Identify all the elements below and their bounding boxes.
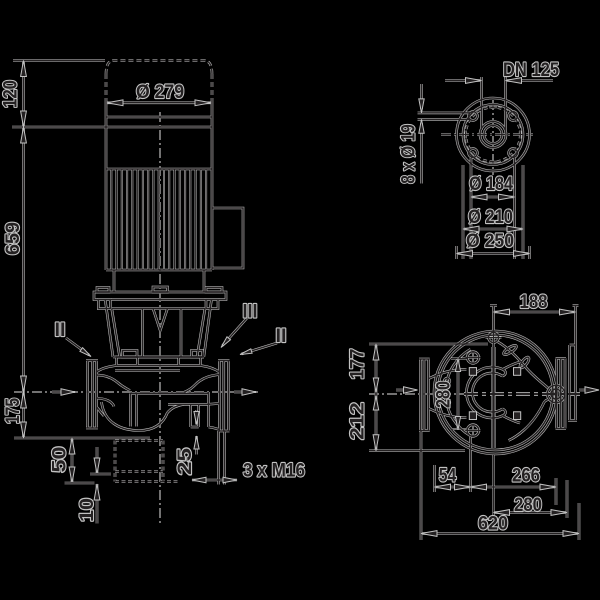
svg-text:Ø 184: Ø 184 — [469, 174, 513, 195]
svg-text:DN 125: DN 125 — [503, 60, 559, 81]
svg-text:8 x Ø 19: 8 x Ø 19 — [399, 124, 420, 184]
svg-text:Ø 279: Ø 279 — [136, 82, 184, 103]
svg-text:120: 120 — [1, 80, 22, 108]
svg-text:II: II — [55, 320, 66, 341]
svg-text:25: 25 — [175, 447, 196, 475]
svg-text:50: 50 — [50, 447, 71, 473]
svg-text:659: 659 — [3, 222, 24, 255]
svg-text:280: 280 — [514, 495, 542, 516]
svg-text:54: 54 — [439, 466, 457, 487]
svg-text:212: 212 — [348, 402, 369, 440]
svg-text:Ø 250: Ø 250 — [466, 231, 514, 252]
svg-text:III: III — [243, 302, 258, 323]
svg-text:II: II — [276, 326, 287, 347]
svg-text:3 x M16: 3 x M16 — [243, 461, 305, 482]
svg-text:10: 10 — [77, 498, 98, 522]
svg-text:177: 177 — [348, 349, 369, 380]
svg-text:Ø 210: Ø 210 — [468, 207, 513, 228]
svg-text:175: 175 — [3, 398, 24, 424]
svg-text:620: 620 — [478, 514, 508, 535]
svg-text:266: 266 — [512, 466, 540, 487]
svg-text:280: 280 — [434, 381, 455, 408]
svg-text:188: 188 — [520, 292, 548, 313]
